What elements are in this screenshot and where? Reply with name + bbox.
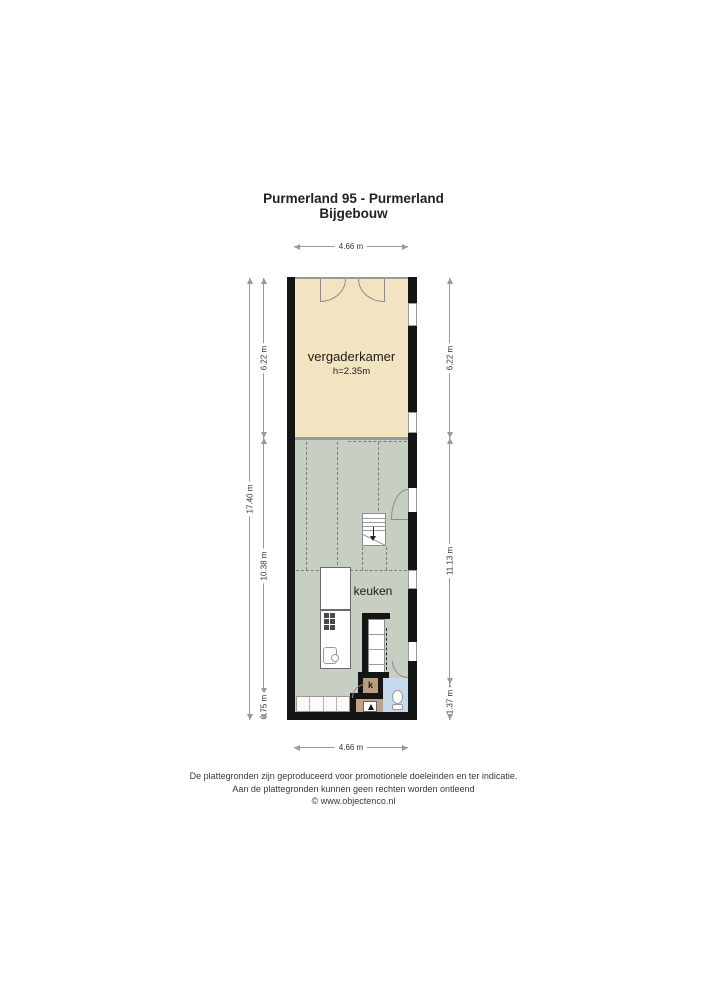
window — [408, 570, 417, 589]
dimension-label: 6.22 m — [260, 343, 269, 373]
disclaimer: De plattegronden zijn geproduceerd voor … — [0, 770, 707, 808]
roofline-dashed — [362, 547, 363, 570]
wall-left — [287, 277, 295, 720]
wall-right — [408, 661, 417, 720]
dimension-label: 0.75 m — [260, 692, 269, 722]
dimension-left-total: 17.40 m — [249, 278, 250, 720]
stairs-down-arrow-icon — [370, 536, 376, 541]
roofline-dashed — [386, 547, 387, 570]
stair-treads — [363, 515, 385, 531]
wall-right — [408, 433, 417, 488]
opening-dashed — [386, 628, 387, 670]
wall-right — [408, 512, 417, 570]
wall-interior — [383, 672, 389, 678]
entrance-marker — [363, 701, 377, 712]
toilet-fixture — [392, 704, 403, 710]
cupboard-stairs — [368, 619, 385, 675]
roofline-dashed — [296, 570, 407, 571]
dimension-label: 10.38 m — [260, 549, 269, 584]
roofline-dashed — [337, 442, 338, 570]
title-line1: Purmerland 95 - Purmerland — [0, 191, 707, 206]
roofline-dashed — [306, 442, 307, 570]
counter-cell — [337, 697, 349, 711]
burner-icon — [330, 619, 335, 624]
dimension-right-middle: 11.13 m — [449, 438, 450, 684]
door-leaf — [408, 642, 417, 661]
wall-right — [408, 326, 417, 412]
title-line2: Bijgebouw — [0, 206, 707, 221]
dimension-label: 4.66 m — [335, 242, 367, 251]
dimension-label: 1.37 m — [446, 687, 455, 717]
dimension-left-upper: 6.22 m — [263, 278, 264, 438]
kitchen-counter — [296, 696, 350, 712]
dimension-left-middle: 10.38 m — [263, 438, 264, 694]
room-height-note: h=2.35m — [295, 366, 408, 377]
burner-icon — [330, 613, 335, 618]
toilet-fixture — [392, 690, 403, 704]
wall-right — [408, 589, 417, 642]
roofline-dashed — [348, 441, 407, 442]
wall-top-glass — [295, 277, 408, 279]
door-leaf — [391, 519, 408, 520]
burner-icon — [324, 625, 329, 630]
window — [408, 412, 417, 433]
dimension-left-lower: 0.75 m — [263, 694, 264, 720]
counter-cell — [297, 697, 309, 711]
dimension-label: 17.40 m — [246, 482, 255, 517]
dimension-top: 4.66 m — [294, 246, 408, 247]
door-leaf — [384, 279, 385, 302]
burner-icon — [324, 613, 329, 618]
dimension-label: 6.22 m — [446, 343, 455, 373]
room-label-vergaderkamer: vergaderkamer — [295, 349, 408, 364]
dimension-right-upper: 6.22 m — [449, 278, 450, 438]
floor-plan-page: Purmerland 95 - Purmerland Bijgebouw ver… — [0, 0, 707, 1000]
room-keuken — [295, 440, 408, 712]
kitchen-island — [320, 567, 351, 669]
roofline-dashed — [378, 442, 379, 511]
disclaimer-line1: De plattegronden zijn geproduceerd voor … — [0, 770, 707, 783]
disclaimer-line2: Aan de plattegronden kunnen geen rechten… — [0, 783, 707, 796]
tap-icon — [331, 654, 339, 662]
counter-cell — [324, 697, 336, 711]
wall-bottom — [287, 712, 417, 720]
burner-icon — [330, 625, 335, 630]
copyright: © www.objectenco.nl — [0, 795, 707, 808]
burner-icon — [324, 619, 329, 624]
entrance-arrow-icon — [368, 704, 374, 710]
dimension-label: 4.66 m — [335, 743, 367, 752]
door-leaf — [408, 488, 417, 512]
dimension-right-lower: 1.37 m — [449, 684, 450, 720]
page-title: Purmerland 95 - Purmerland Bijgebouw — [0, 191, 707, 221]
cooktop-icon — [324, 613, 335, 630]
window — [408, 303, 417, 326]
dimension-bottom: 4.66 m — [294, 747, 408, 748]
counter-cell — [310, 697, 322, 711]
staircase — [362, 513, 386, 546]
stairs-down-arrow-icon — [373, 527, 374, 536]
closet-k-label: k — [363, 680, 378, 690]
island-divider — [321, 609, 350, 611]
dimension-label: 11.13 m — [446, 544, 455, 578]
wall-right — [408, 277, 417, 303]
